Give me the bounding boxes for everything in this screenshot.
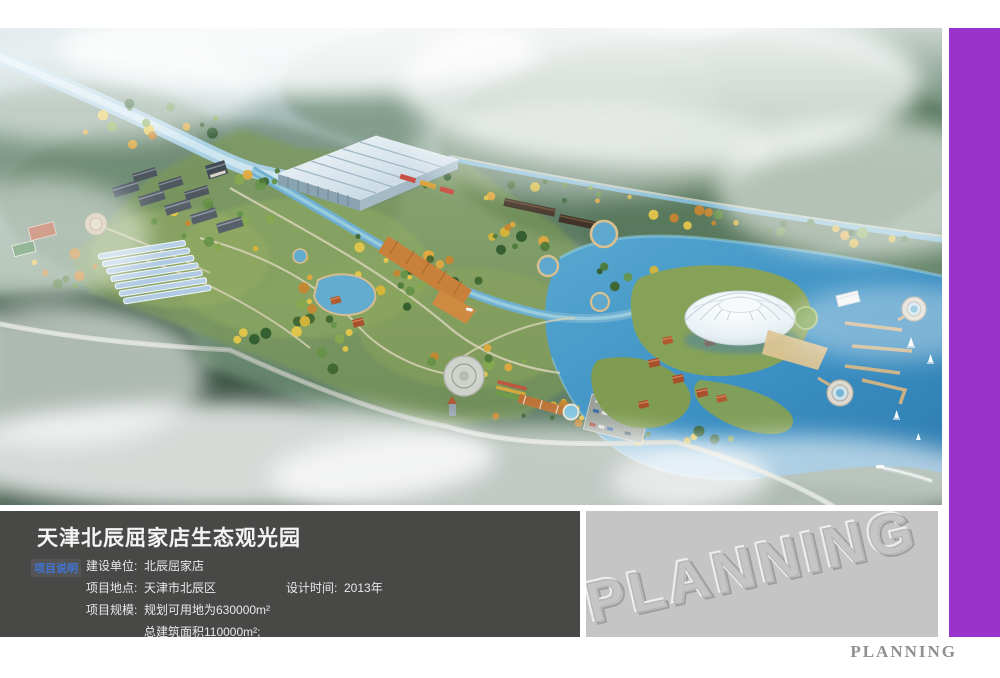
- field-value: 天津市北辰区: [144, 579, 286, 596]
- detail-row-floor-area: 总建筑面积110000m²;: [86, 623, 383, 645]
- field-label: 项目地点:: [86, 579, 144, 596]
- field-label: 项目规模:: [86, 601, 144, 618]
- field-value: 总建筑面积110000m²;: [144, 625, 260, 639]
- footer-brand-text: PLANNING: [850, 642, 957, 662]
- field-value: 2013年: [344, 581, 383, 595]
- field-label: 设计时间:: [286, 579, 344, 596]
- aerial-render-svg: [0, 28, 942, 505]
- detail-row-scale: 项目规模:规划可用地为630000m²: [86, 601, 383, 623]
- fountain: [564, 405, 579, 420]
- project-title: 天津北辰屈家店生态观光园: [37, 522, 301, 552]
- field-label: 建设单位:: [86, 557, 144, 574]
- field-value: 规划可用地为630000m²: [144, 603, 270, 617]
- presentation-page: 天津北辰屈家店生态观光园 项目说明 建设单位:北辰屈家店 项目地点:天津市北辰区…: [0, 0, 1000, 678]
- watermark-panel: PLANNING PLANNING PLANNING: [586, 511, 938, 637]
- project-details: 建设单位:北辰屈家店 项目地点:天津市北辰区设计时间:2013年 项目规模:规划…: [86, 557, 383, 645]
- detail-row-builder: 建设单位:北辰屈家店: [86, 557, 383, 579]
- project-info-panel: 天津北辰屈家店生态观光园 项目说明 建设单位:北辰屈家店 项目地点:天津市北辰区…: [0, 511, 580, 637]
- accent-bar: [949, 28, 1000, 637]
- aerial-render-image: [0, 28, 942, 505]
- planning-watermark: PLANNING PLANNING PLANNING: [586, 511, 938, 637]
- field-value: 北辰屈家店: [144, 559, 204, 573]
- section-label: 项目说明: [31, 559, 81, 577]
- detail-row-location: 项目地点:天津市北辰区设计时间:2013年: [86, 579, 383, 601]
